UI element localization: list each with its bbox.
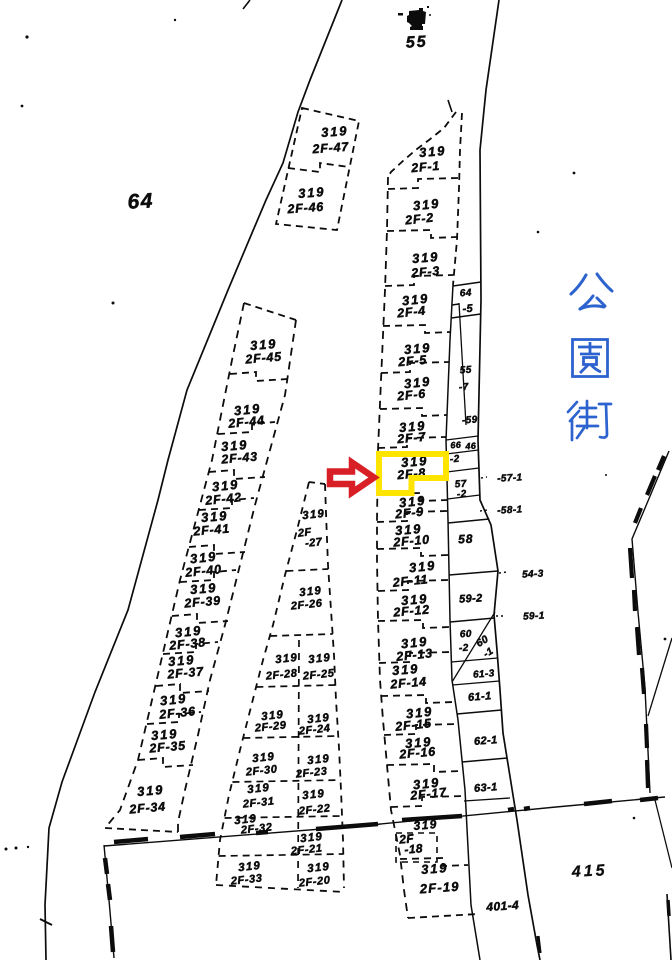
svg-text:-27: -27 — [305, 536, 324, 550]
svg-text:-2: -2 — [459, 643, 469, 654]
svg-text:61-1: 61-1 — [468, 690, 492, 704]
svg-text:64: 64 — [459, 288, 472, 300]
svg-text:319: 319 — [247, 782, 271, 796]
svg-text:2F-7: 2F-7 — [396, 430, 427, 447]
svg-text:2F-3: 2F-3 — [410, 264, 441, 281]
svg-text:319: 319 — [308, 652, 332, 666]
svg-text:2F-19: 2F-19 — [418, 879, 460, 897]
svg-text:-57-1: -57-1 — [497, 472, 523, 484]
svg-text:319: 319 — [418, 143, 446, 160]
svg-text:54-3: 54-3 — [522, 568, 544, 580]
svg-text:61-3: 61-3 — [473, 668, 495, 680]
svg-text:55: 55 — [405, 33, 428, 51]
svg-text:2F-1: 2F-1 — [410, 159, 441, 176]
svg-text:319: 319 — [321, 123, 349, 140]
svg-text:59-1: 59-1 — [523, 610, 545, 622]
svg-text:319: 319 — [302, 508, 326, 522]
svg-text:-59: -59 — [462, 414, 478, 426]
svg-text:415: 415 — [570, 862, 608, 881]
svg-text:319: 319 — [421, 860, 449, 877]
svg-text:-2: -2 — [457, 489, 467, 501]
svg-text:46: 46 — [464, 441, 477, 452]
svg-text:62-1: 62-1 — [474, 734, 498, 748]
svg-text:66: 66 — [450, 440, 462, 451]
svg-text:2F-47: 2F-47 — [311, 140, 350, 157]
svg-text:-2: -2 — [450, 454, 460, 466]
svg-text:2F-46: 2F-46 — [286, 200, 325, 217]
svg-text:319: 319 — [136, 782, 164, 799]
svg-text:319: 319 — [413, 817, 438, 833]
svg-text:59-2: 59-2 — [459, 592, 483, 605]
svg-text:58: 58 — [458, 532, 474, 547]
svg-text:-7: -7 — [459, 382, 469, 394]
svg-text:55: 55 — [459, 365, 472, 377]
svg-text:319: 319 — [298, 184, 326, 201]
svg-text:-58-1: -58-1 — [497, 504, 523, 516]
svg-text:319: 319 — [307, 753, 331, 767]
svg-text:319: 319 — [275, 652, 299, 666]
svg-text:64: 64 — [127, 189, 155, 213]
svg-text:63-1: 63-1 — [474, 781, 498, 795]
svg-text:-18: -18 — [404, 841, 424, 857]
svg-text:401-4: 401-4 — [485, 898, 520, 914]
svg-text:2F-5: 2F-5 — [397, 353, 428, 370]
svg-text:319: 319 — [307, 861, 331, 875]
svg-text:-5: -5 — [462, 303, 474, 316]
svg-text:319: 319 — [302, 788, 326, 802]
svg-text:60: 60 — [460, 629, 473, 641]
